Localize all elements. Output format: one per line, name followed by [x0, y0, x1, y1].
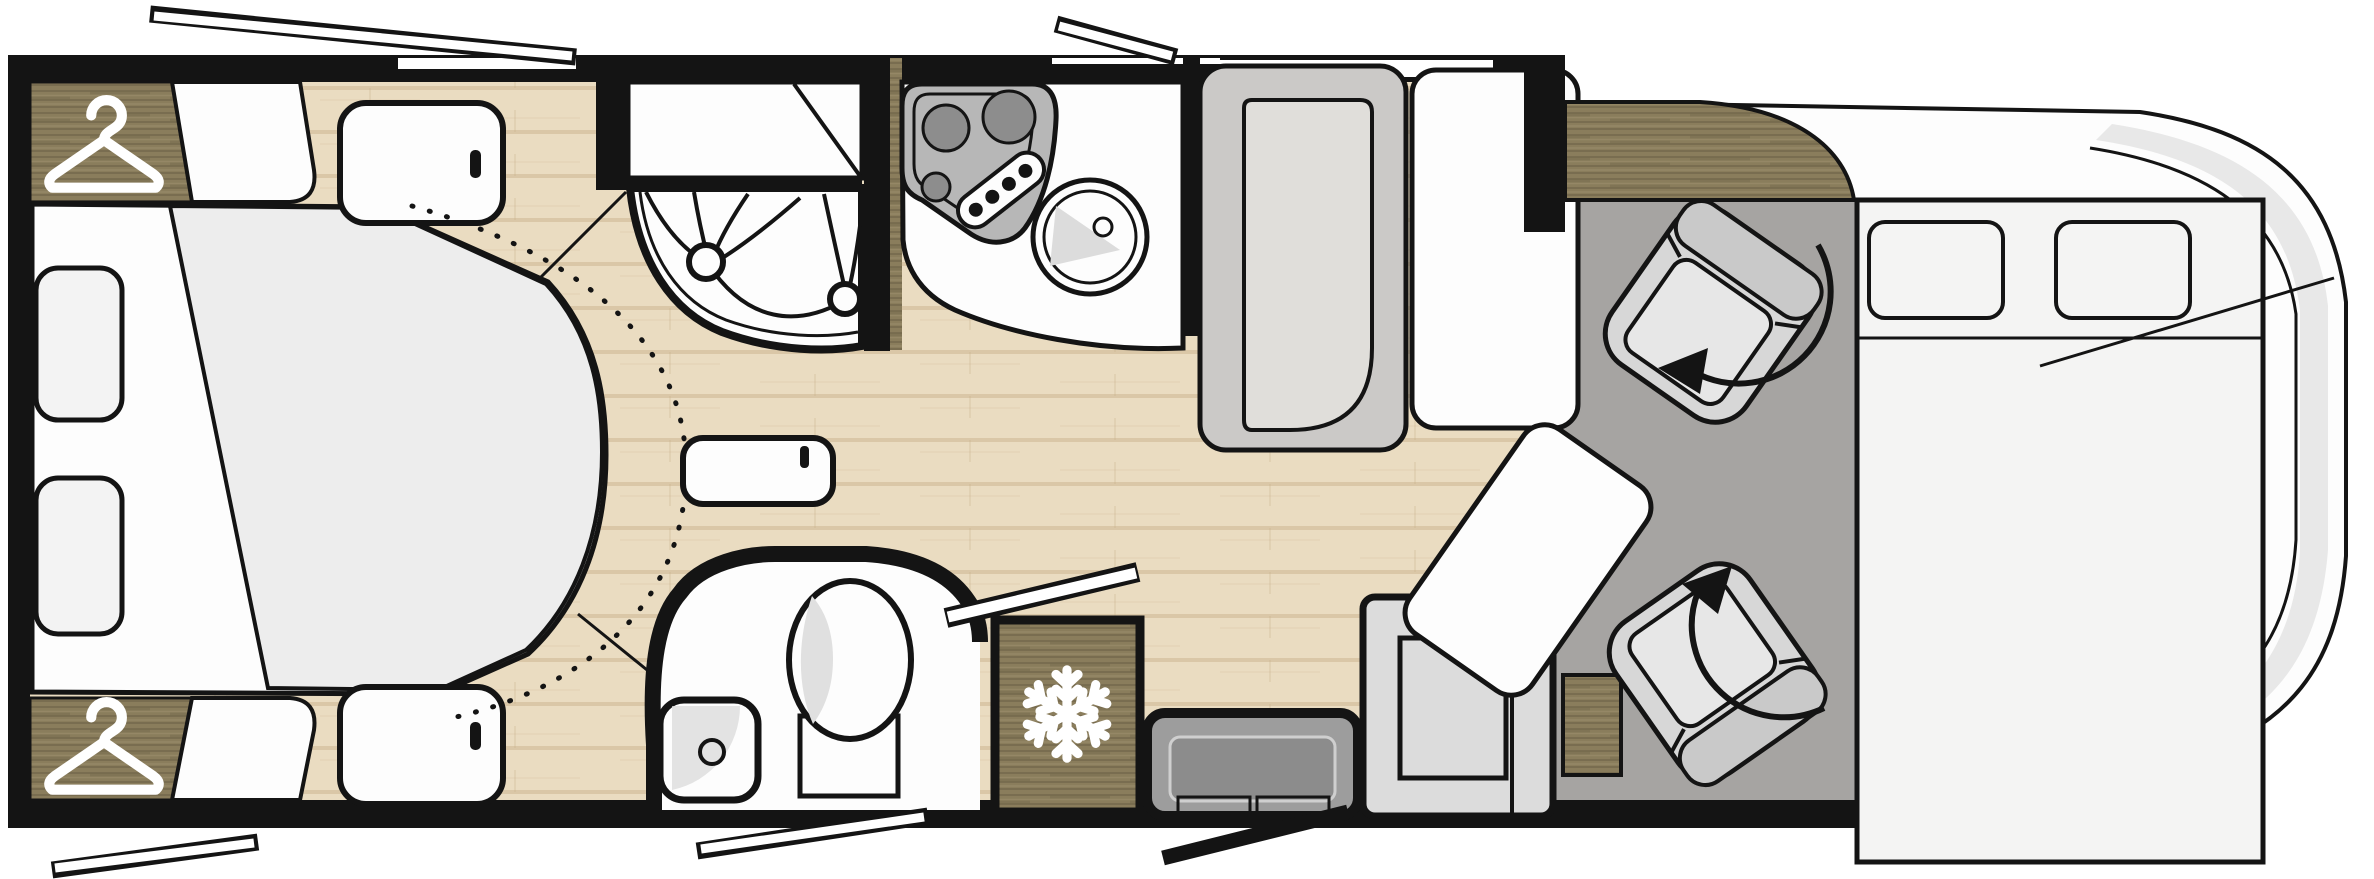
drop-bed-panel — [1857, 200, 2263, 862]
kitchen-dinette-wall — [1183, 56, 1200, 336]
snowflake-icon — [1023, 670, 1111, 758]
refrigerator — [995, 620, 1140, 812]
cabinet-handle — [800, 446, 809, 468]
drop-down-bed — [1857, 200, 2334, 862]
burner — [983, 91, 1035, 143]
bed-pillow — [36, 268, 122, 420]
left-wall — [8, 55, 30, 828]
entry-step-inner — [1170, 737, 1335, 801]
burner — [923, 105, 969, 151]
overhead-cabinet-top — [172, 82, 315, 202]
floorplan-canvas — [0, 0, 2374, 879]
overhead-cabinet-bottom — [172, 698, 315, 800]
partition-stub — [596, 82, 628, 190]
door-knob — [689, 245, 723, 279]
top-wall-end-stub — [1524, 55, 1565, 232]
cabinet-handle — [470, 722, 481, 750]
window-flap — [1059, 26, 1172, 56]
window-flap — [154, 16, 572, 56]
entrance — [1147, 713, 1358, 858]
shower-right-wall — [864, 55, 890, 351]
bathroom-cabinet — [683, 438, 833, 504]
burner — [922, 173, 950, 201]
door-knob — [830, 284, 860, 314]
dinette-bench-seat — [1244, 100, 1372, 430]
bed-pillow — [36, 478, 122, 634]
motorhome-floorplan — [0, 0, 2374, 879]
cabinet-handle — [470, 150, 481, 178]
side-counter-wood — [1563, 675, 1621, 775]
